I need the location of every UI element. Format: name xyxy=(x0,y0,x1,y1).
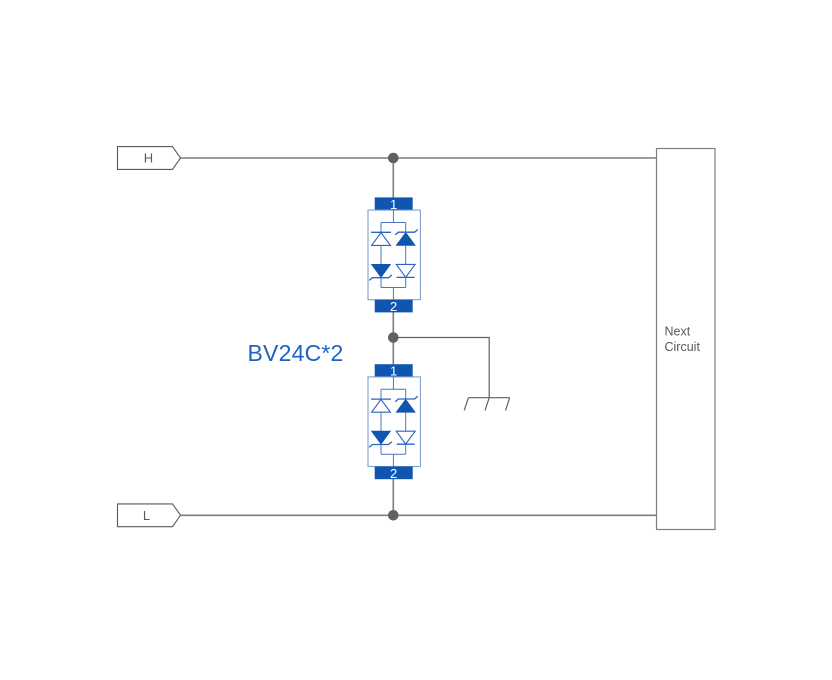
svg-text:2: 2 xyxy=(390,466,397,481)
svg-text:Next: Next xyxy=(665,325,691,339)
svg-text:BV24C*2: BV24C*2 xyxy=(248,340,344,366)
svg-text:L: L xyxy=(143,508,150,523)
svg-text:H: H xyxy=(144,151,153,166)
svg-text:1: 1 xyxy=(390,364,397,379)
svg-text:1: 1 xyxy=(390,197,397,212)
svg-text:Circuit: Circuit xyxy=(665,340,701,354)
svg-text:2: 2 xyxy=(390,299,397,314)
